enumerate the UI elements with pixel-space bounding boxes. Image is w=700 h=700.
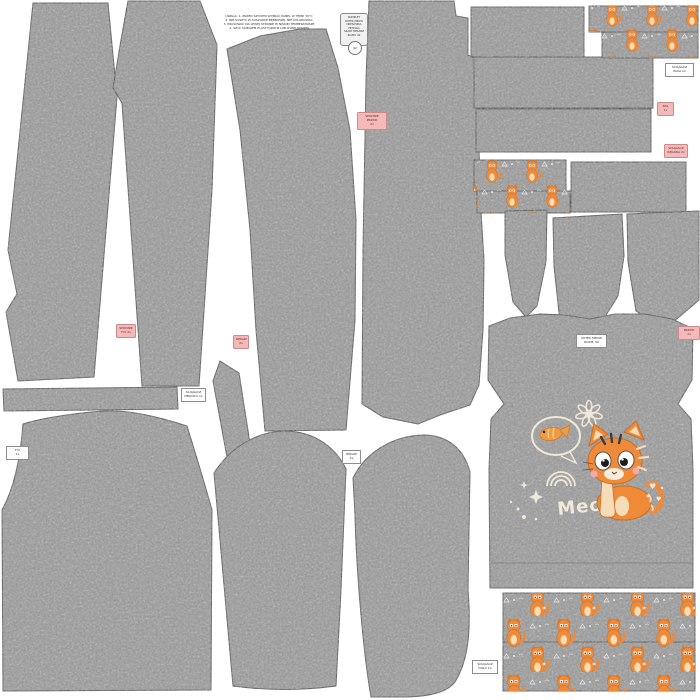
- label-back-white: TYŁ 1x: [6, 446, 29, 460]
- cat-print-overlay-mid-2: [477, 191, 570, 213]
- label-sleeve-cuff-pink: ŚCIĄGACZ RĘKAWA 2x: [664, 144, 688, 158]
- piece-sleeve-1: [214, 431, 346, 690]
- piece-pants-leg-4: [362, 1, 484, 424]
- cat-belly: [615, 496, 629, 516]
- cat-print-overlay-mid-1: [474, 160, 566, 191]
- label-front-pink: PRZÓD 1x: [678, 326, 700, 340]
- cat-print-overlay-hem-2: [503, 642, 695, 691]
- piece-hood-1: [553, 214, 624, 322]
- fabric-panel: Meow: [0, 0, 700, 700]
- piece-pocket-1: [505, 210, 547, 317]
- label-neckband-white: ŚCIĄGACZ DEKOLTU 1x: [181, 388, 206, 402]
- pattern-pieces-canvas: Meow: [0, 0, 700, 700]
- label-pants-back-pink: SPODNIE TYŁ 2x: [116, 324, 136, 338]
- piece-hood-2: [627, 211, 699, 329]
- piece-pants-leg-3: [227, 29, 356, 431]
- label-sleeve-pink: RĘKAW 2x: [233, 335, 249, 349]
- svg-text:♥: ♥: [656, 496, 661, 503]
- piece-sleeve-2: [353, 435, 470, 697]
- label-hem-cuff-white: ŚCIĄGACZ DOŁU 1x: [472, 660, 498, 674]
- care-instructions-note: UWAGA: 1. PRZED SZYCIEM WYPRAĆ PANEL W T…: [216, 14, 322, 30]
- piece-cuff-strip-1: [471, 7, 584, 57]
- label-waist-cuff-white: ŚCIĄGACZ PASA 1x: [665, 63, 694, 77]
- label-shirt-size-white: KOTEK MEOW ROZM. 92: [576, 334, 607, 348]
- label-sleeve2-white: RĘKAW 2x: [342, 450, 361, 464]
- panel-size-stamp: 92: [348, 41, 362, 55]
- piece-cuff-strip-3: [476, 109, 651, 152]
- cat-print-overlay-top-2: [602, 32, 698, 58]
- cat-print-overlay-top-1: [589, 6, 698, 32]
- cat-print-overlay-hem-1: [503, 593, 695, 642]
- piece-cuff-strip-2: [474, 57, 653, 108]
- piece-cuff-strip-4: [571, 162, 686, 212]
- label-pants-front-pink: SPODNIE PRZÓD 2x: [357, 112, 387, 130]
- piece-shirt-back: [2, 411, 212, 691]
- label-waistband-pink: PAS 1x: [657, 102, 674, 116]
- svg-text:♥: ♥: [649, 482, 656, 491]
- piece-pants-leg-1: [6, 3, 117, 381]
- piece-neckband: [3, 387, 178, 411]
